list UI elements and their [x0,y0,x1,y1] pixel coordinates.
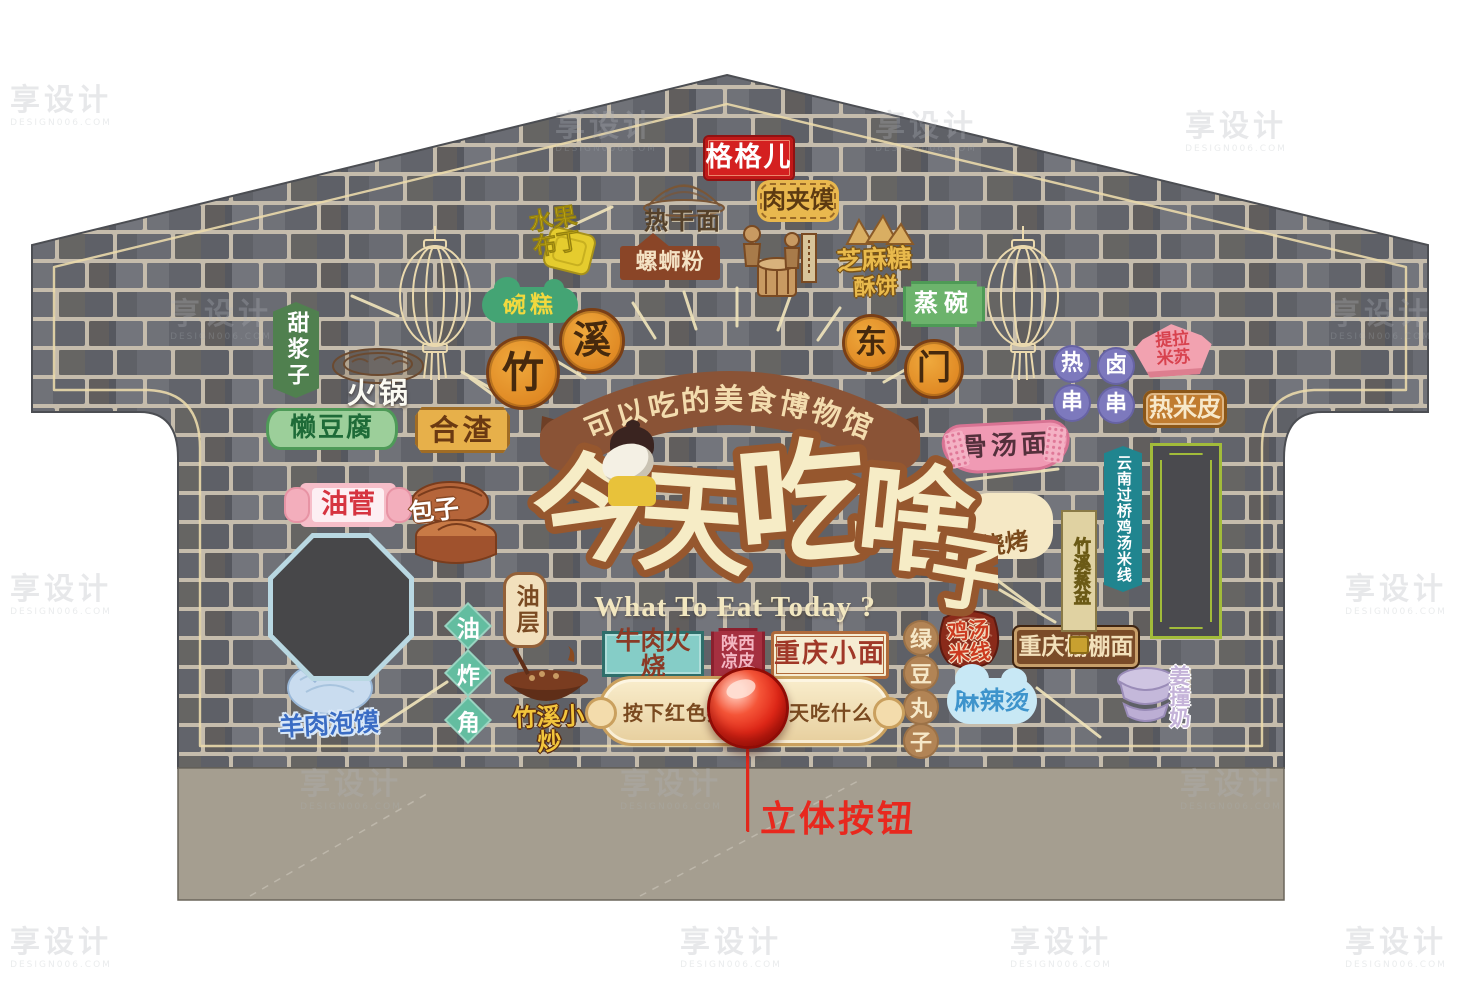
sign-luchuan-char: 串 [1097,386,1135,424]
sign-zhengwan: 蒸碗 [903,281,985,327]
sign-line: 油菅 [312,488,384,522]
sign-luchuan-char: 卤 [1097,347,1135,385]
design-canvas: 格格儿 热干面 肉夹馍 水果 布丁 螺蛳粉 芝麻糖 酥饼 蒸碗 碗糕 竹 溪 东… [0,0,1460,1000]
sign-shuiguo-buding: 水果 布丁 [514,198,596,267]
sign-reganmian: 热干面 [643,208,723,236]
sign-line: 米线 [948,641,991,666]
main-title-english: What To Eat Today ? [555,590,915,624]
sign-malatang: 麻辣烫 [947,678,1037,724]
annotation-3d-button: 立体按钮 [758,800,918,840]
sign-hezha: 合渣 [415,407,510,453]
sign-yangrou-paomo: 羊肉泡馍 [275,707,382,743]
menu-board-right [1150,443,1222,639]
sign-roujiamo: 肉夹馍 [757,180,839,222]
sign-luosifen: 螺蛳粉 [620,246,720,280]
kid-eating-illustration [596,426,668,510]
red-push-button[interactable] [707,667,789,749]
sign-line: 米苏 [1156,349,1191,369]
sign-zhuxi-xiaochao: 竹溪小炒 [503,714,596,745]
pointer-line [746,749,749,831]
sign-rechuan-char: 热 [1053,345,1091,383]
sign-lvdou-wanzi-char: 豆 [903,655,939,691]
sign-chongqing-xiaomian: 重庆小面 [771,631,889,679]
sign-huoguo: 火锅 [344,378,414,408]
sign-lvdou-wanzi-char: 丸 [903,689,939,725]
sign-line: 酥饼 [853,274,898,299]
sign-niurou-huoshao: 牛肉火烧 [602,631,704,677]
sign-lvdou-wanzi-char: 绿 [903,620,939,656]
sign-wangao: 碗糕 [482,287,578,323]
sign-line: 布丁 [531,228,582,260]
sign-tianjiangzi: 甜浆子 [273,302,319,398]
sign-rechuan-char: 串 [1053,384,1091,422]
sign-remipi: 热米皮 [1143,390,1227,428]
sign-line: 芝麻糖 [836,245,912,275]
sign-lvdou-wanzi-char: 子 [903,723,939,759]
sign-zhuxi-zhengpen: 竹溪蒸盆 [1061,510,1097,632]
sign-yunnan-mixian: 云南过桥鸡汤米线 [1104,446,1142,592]
menu-board-octagon [268,533,414,681]
sign-jiang-zhuang-nai: 姜撞奶 [1164,658,1194,734]
sign-youjian: 油菅 [300,483,396,527]
roof-sign-gegeer: 格格儿 [703,135,795,181]
sign-landoufu: 懒豆腐 [266,408,398,450]
base-plinth [178,768,1284,900]
